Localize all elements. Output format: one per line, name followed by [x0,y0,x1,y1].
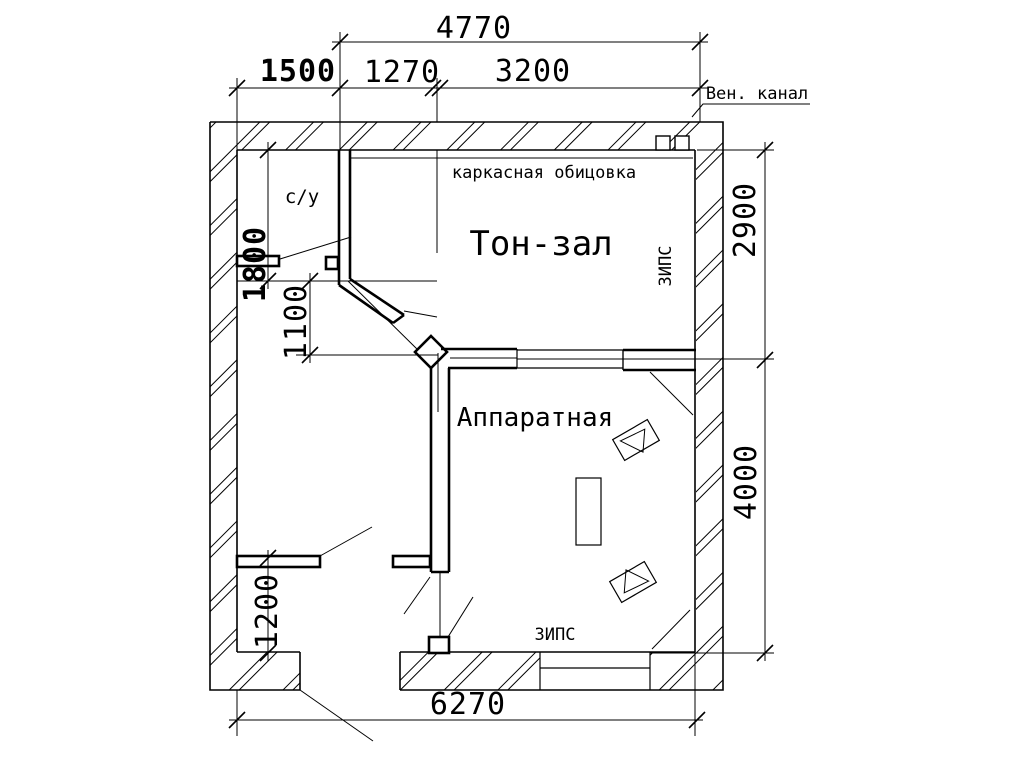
console-desk [576,478,601,545]
column-block [429,637,449,653]
floor-plan-page: 4770 1500 1270 3200 Вен. канал каркасная… [0,0,1024,768]
door-swing [320,527,372,556]
door-swing [348,281,420,352]
dim-left-lower: 1200 [250,573,285,649]
label-cladding: каркасная обицовка [452,163,636,183]
label-control-room: Аппаратная [457,403,614,433]
speaker-icon [609,560,657,603]
label-tone-hall: Тон-зал [469,224,612,264]
door-pivot-block [326,257,338,269]
corner-node [415,336,447,368]
dim-left-mid: 1100 [279,284,314,360]
label-zips-right: ЗИПС [656,246,676,287]
floor-plan-drawing: 4770 1500 1270 3200 Вен. канал каркасная… [0,0,1024,768]
speaker-icon [613,420,661,463]
dim-top-left: 1500 [260,54,336,89]
dim-left-upper: 1800 [238,226,273,302]
dim-top-mid: 1270 [364,55,440,90]
label-vent-channel: Вен. канал [706,84,808,104]
dim-bottom-total: 6270 [430,687,506,722]
dim-right-upper: 2900 [728,182,763,258]
label-bathroom: с/у [285,186,319,208]
room-divider-wall [415,336,696,572]
label-zips-bottom: ЗИПС [535,625,576,645]
dim-top-right: 3200 [495,54,571,89]
door-swing [280,237,351,259]
equipment [576,420,660,603]
dim-top-total: 4770 [436,11,512,46]
dim-right-lower: 4000 [729,444,764,520]
